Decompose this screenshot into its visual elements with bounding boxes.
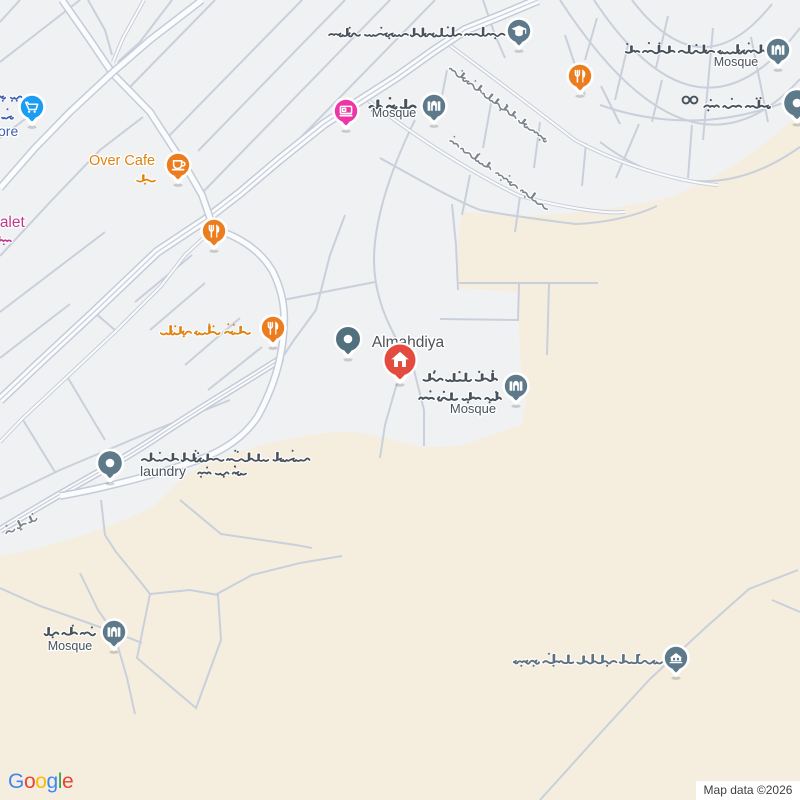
svg-text:Mosque: Mosque xyxy=(48,639,93,653)
svg-text:Chalet: Chalet xyxy=(0,214,25,231)
svg-text:ore: ore xyxy=(0,123,18,139)
svg-text:Mosque: Mosque xyxy=(372,106,417,120)
svg-text:Mosque: Mosque xyxy=(450,401,496,416)
svg-text:laundry: laundry xyxy=(140,463,186,479)
svg-text:Over Cafe: Over Cafe xyxy=(89,153,155,169)
svg-text:Mosque: Mosque xyxy=(714,55,759,69)
